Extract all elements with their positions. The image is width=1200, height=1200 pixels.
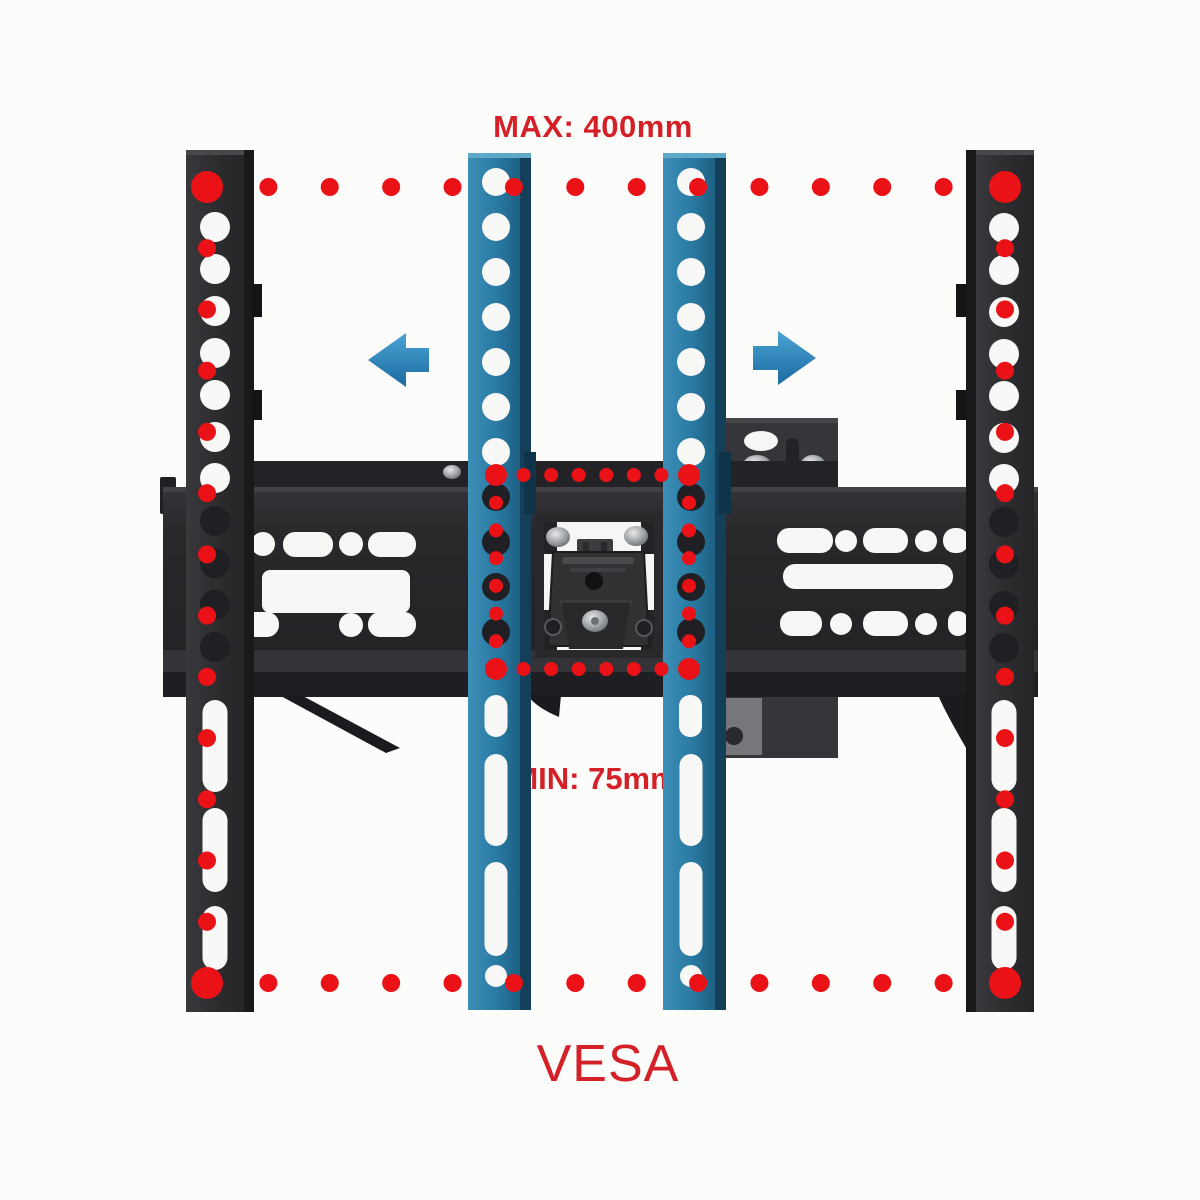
vesa-hole-marker (750, 178, 768, 196)
bracket-hole (482, 393, 510, 421)
vesa-hole-marker (259, 974, 277, 992)
vesa-hole-marker (689, 178, 707, 196)
bracket-hole (677, 438, 705, 466)
rail-slot (863, 611, 908, 636)
rail-hole (339, 532, 363, 556)
vesa-hole-marker (935, 974, 953, 992)
wall-plate-oval-hole (744, 431, 778, 451)
vesa-corner-marker (191, 171, 223, 203)
tilt-tab-ridge (601, 542, 607, 551)
screw-center (591, 617, 599, 625)
vesa-hole-marker (996, 362, 1014, 380)
bracket-hole (482, 438, 510, 466)
vesa-hole-marker (996, 607, 1014, 625)
vesa-hole-marker (689, 974, 707, 992)
rail-slot (780, 611, 822, 636)
bracket-hole (200, 212, 230, 242)
vesa-corner-marker (989, 171, 1021, 203)
screw-icon (443, 465, 461, 479)
vesa-hole-marker (489, 551, 503, 565)
bracket-top-cap (976, 150, 1034, 155)
rail-slot (783, 564, 953, 589)
vesa-hole-marker (599, 468, 613, 482)
vesa-hole-marker (198, 300, 216, 318)
vesa-hole-marker (682, 579, 696, 593)
bracket-tab (956, 390, 966, 420)
vesa-hole-marker (599, 662, 613, 676)
bracket-slot (992, 808, 1017, 892)
rail-back-plate-body (238, 461, 838, 489)
vesa-hole-marker (321, 178, 339, 196)
vesa-hole-marker (198, 852, 216, 870)
vesa-hole-marker (198, 423, 216, 441)
black-bracket-right (956, 150, 1034, 1012)
bolt-icon (636, 620, 652, 636)
vesa-hole-marker (654, 468, 668, 482)
vesa-corner-marker (678, 658, 700, 680)
vesa-hole-marker (198, 668, 216, 686)
vesa-hole-marker (382, 178, 400, 196)
vesa-hole-marker (198, 484, 216, 502)
vesa-hole-marker (682, 523, 696, 537)
vesa-hole-marker (198, 790, 216, 808)
vesa-hole-marker (996, 545, 1014, 563)
bracket-hole (482, 213, 510, 241)
rail-slot (943, 528, 969, 553)
vesa-hole-marker (505, 974, 523, 992)
vesa-corner-marker (678, 464, 700, 486)
rail-slot (777, 528, 833, 553)
tilt-center-hole (585, 572, 603, 590)
bracket-top-cap (468, 153, 531, 158)
vesa-hole-marker (935, 178, 953, 196)
bracket-hole (482, 258, 510, 286)
bracket-hole (677, 303, 705, 331)
bracket-tab (719, 452, 731, 514)
wall-plate-top-edge (718, 418, 838, 423)
vesa-hole-marker (812, 178, 830, 196)
vesa-hole-marker (489, 634, 503, 648)
arrow-right-icon (753, 331, 816, 385)
vesa-hole-marker (873, 178, 891, 196)
vesa-corner-marker (989, 967, 1021, 999)
bracket-slot (485, 695, 508, 737)
wall-plate-lower-hole (725, 727, 743, 745)
bracket-hole (200, 632, 230, 662)
bracket-hole (989, 381, 1019, 411)
bracket-hole (200, 380, 230, 410)
vesa-hole-marker (996, 913, 1014, 931)
vesa-hole-marker (198, 729, 216, 747)
bracket-slot (485, 862, 508, 956)
rail-slot (863, 528, 908, 553)
vesa-hole-marker (198, 362, 216, 380)
vesa-hole-marker (566, 974, 584, 992)
rail-hole (339, 613, 363, 637)
arrow-left-icon (368, 333, 429, 387)
vesa-hole-marker (682, 607, 696, 621)
rail-slot (948, 611, 968, 636)
bracket-hole (482, 348, 510, 376)
vesa-hole-marker (517, 662, 531, 676)
bracket-hole (677, 393, 705, 421)
vesa-hole-marker (682, 551, 696, 565)
rail-slot (368, 612, 416, 637)
bracket-hole (989, 633, 1019, 663)
rail-hole (915, 613, 937, 635)
tilt-plate-label (562, 557, 634, 564)
tilt-mechanism (535, 513, 662, 658)
vesa-hole-marker (996, 300, 1014, 318)
vesa-hole-marker (517, 468, 531, 482)
vesa-hole-marker (996, 668, 1014, 686)
bracket-hole (485, 965, 507, 987)
bracket-hole (989, 213, 1019, 243)
bracket-side-edge (715, 153, 726, 1010)
bracket-tab (524, 452, 536, 514)
tilt-tab-ridge (583, 542, 589, 551)
bracket-slot (679, 695, 702, 737)
vesa-hole-marker (812, 974, 830, 992)
rail-bottom-edge (163, 672, 1038, 697)
screw-icon (624, 526, 648, 546)
bracket-hole (989, 255, 1019, 285)
vesa-hole-marker (682, 496, 696, 510)
screw-icon (546, 527, 570, 547)
rail-hole (835, 530, 857, 552)
vesa-hole-marker (996, 484, 1014, 502)
bracket-hole (677, 213, 705, 241)
bracket-tab (252, 284, 262, 317)
vesa-hole-marker (489, 579, 503, 593)
bracket-hole (200, 506, 230, 536)
bracket-hole (677, 348, 705, 376)
vesa-hole-marker (627, 468, 641, 482)
rail-slot (368, 532, 416, 557)
vesa-hole-marker (572, 468, 586, 482)
bracket-hole (200, 254, 230, 284)
vesa-hole-marker (572, 662, 586, 676)
bracket-tab (956, 284, 966, 317)
vesa-hole-marker (259, 178, 277, 196)
bracket-slot (203, 808, 228, 892)
vesa-hole-marker (198, 239, 216, 257)
vesa-hole-marker (996, 852, 1014, 870)
rail-hole (830, 613, 852, 635)
vesa-corner-marker (485, 464, 507, 486)
bracket-tab (252, 390, 262, 420)
vesa-hole-marker (198, 607, 216, 625)
vesa-hole-marker (996, 239, 1014, 257)
bracket-hole (677, 258, 705, 286)
vesa-corner-marker (191, 967, 223, 999)
tilt-plate-label (570, 568, 626, 572)
vesa-hole-marker (654, 662, 668, 676)
bolt-icon (545, 619, 561, 635)
vesa-hole-marker (489, 607, 503, 621)
vesa-hole-marker (566, 178, 584, 196)
bracket-top-cap (663, 153, 726, 158)
blue-bracket-right (663, 153, 731, 1010)
bracket-slot (680, 754, 703, 846)
vesa-hole-marker (996, 423, 1014, 441)
bracket-hole (989, 507, 1019, 537)
vesa-hole-marker (489, 523, 503, 537)
vesa-hole-marker (198, 545, 216, 563)
tv-hook (527, 695, 561, 717)
bracket-hole (482, 303, 510, 331)
vesa-hole-marker (544, 662, 558, 676)
vesa-hole-marker (505, 178, 523, 196)
vesa-hole-marker (996, 790, 1014, 808)
rail-top-edge (163, 487, 1038, 492)
rail-back-plate (238, 461, 838, 489)
tv-hook (279, 695, 400, 753)
tv-mount-vesa-diagram: MAX: 400mm MIN: 75mm VESA (0, 0, 1200, 1200)
vesa-hole-marker (444, 178, 462, 196)
vesa-hole-marker (628, 178, 646, 196)
bracket-slot (680, 862, 703, 956)
vesa-hole-marker (444, 974, 462, 992)
vesa-hole-marker (382, 974, 400, 992)
blue-bracket-left (468, 153, 536, 1010)
rail-cutout (262, 570, 410, 613)
vesa-hole-marker (627, 662, 641, 676)
vesa-hole-marker (873, 974, 891, 992)
vesa-hole-marker (628, 974, 646, 992)
vesa-corner-marker (485, 658, 507, 680)
mount-illustration (0, 0, 1200, 1200)
bracket-slot (485, 754, 508, 846)
rail-hole (915, 530, 937, 552)
vesa-hole-marker (996, 729, 1014, 747)
bracket-top-cap (186, 150, 244, 155)
rail-hole (251, 532, 275, 556)
bracket-hole (482, 168, 510, 196)
vesa-hole-marker (682, 634, 696, 648)
black-bracket-left (186, 150, 262, 1012)
vesa-hole-marker (544, 468, 558, 482)
vesa-hole-marker (489, 496, 503, 510)
vesa-hole-marker (321, 974, 339, 992)
rail-slot (283, 532, 333, 557)
vesa-hole-marker (750, 974, 768, 992)
bracket-side-edge (520, 153, 531, 1010)
vesa-hole-marker (198, 913, 216, 931)
